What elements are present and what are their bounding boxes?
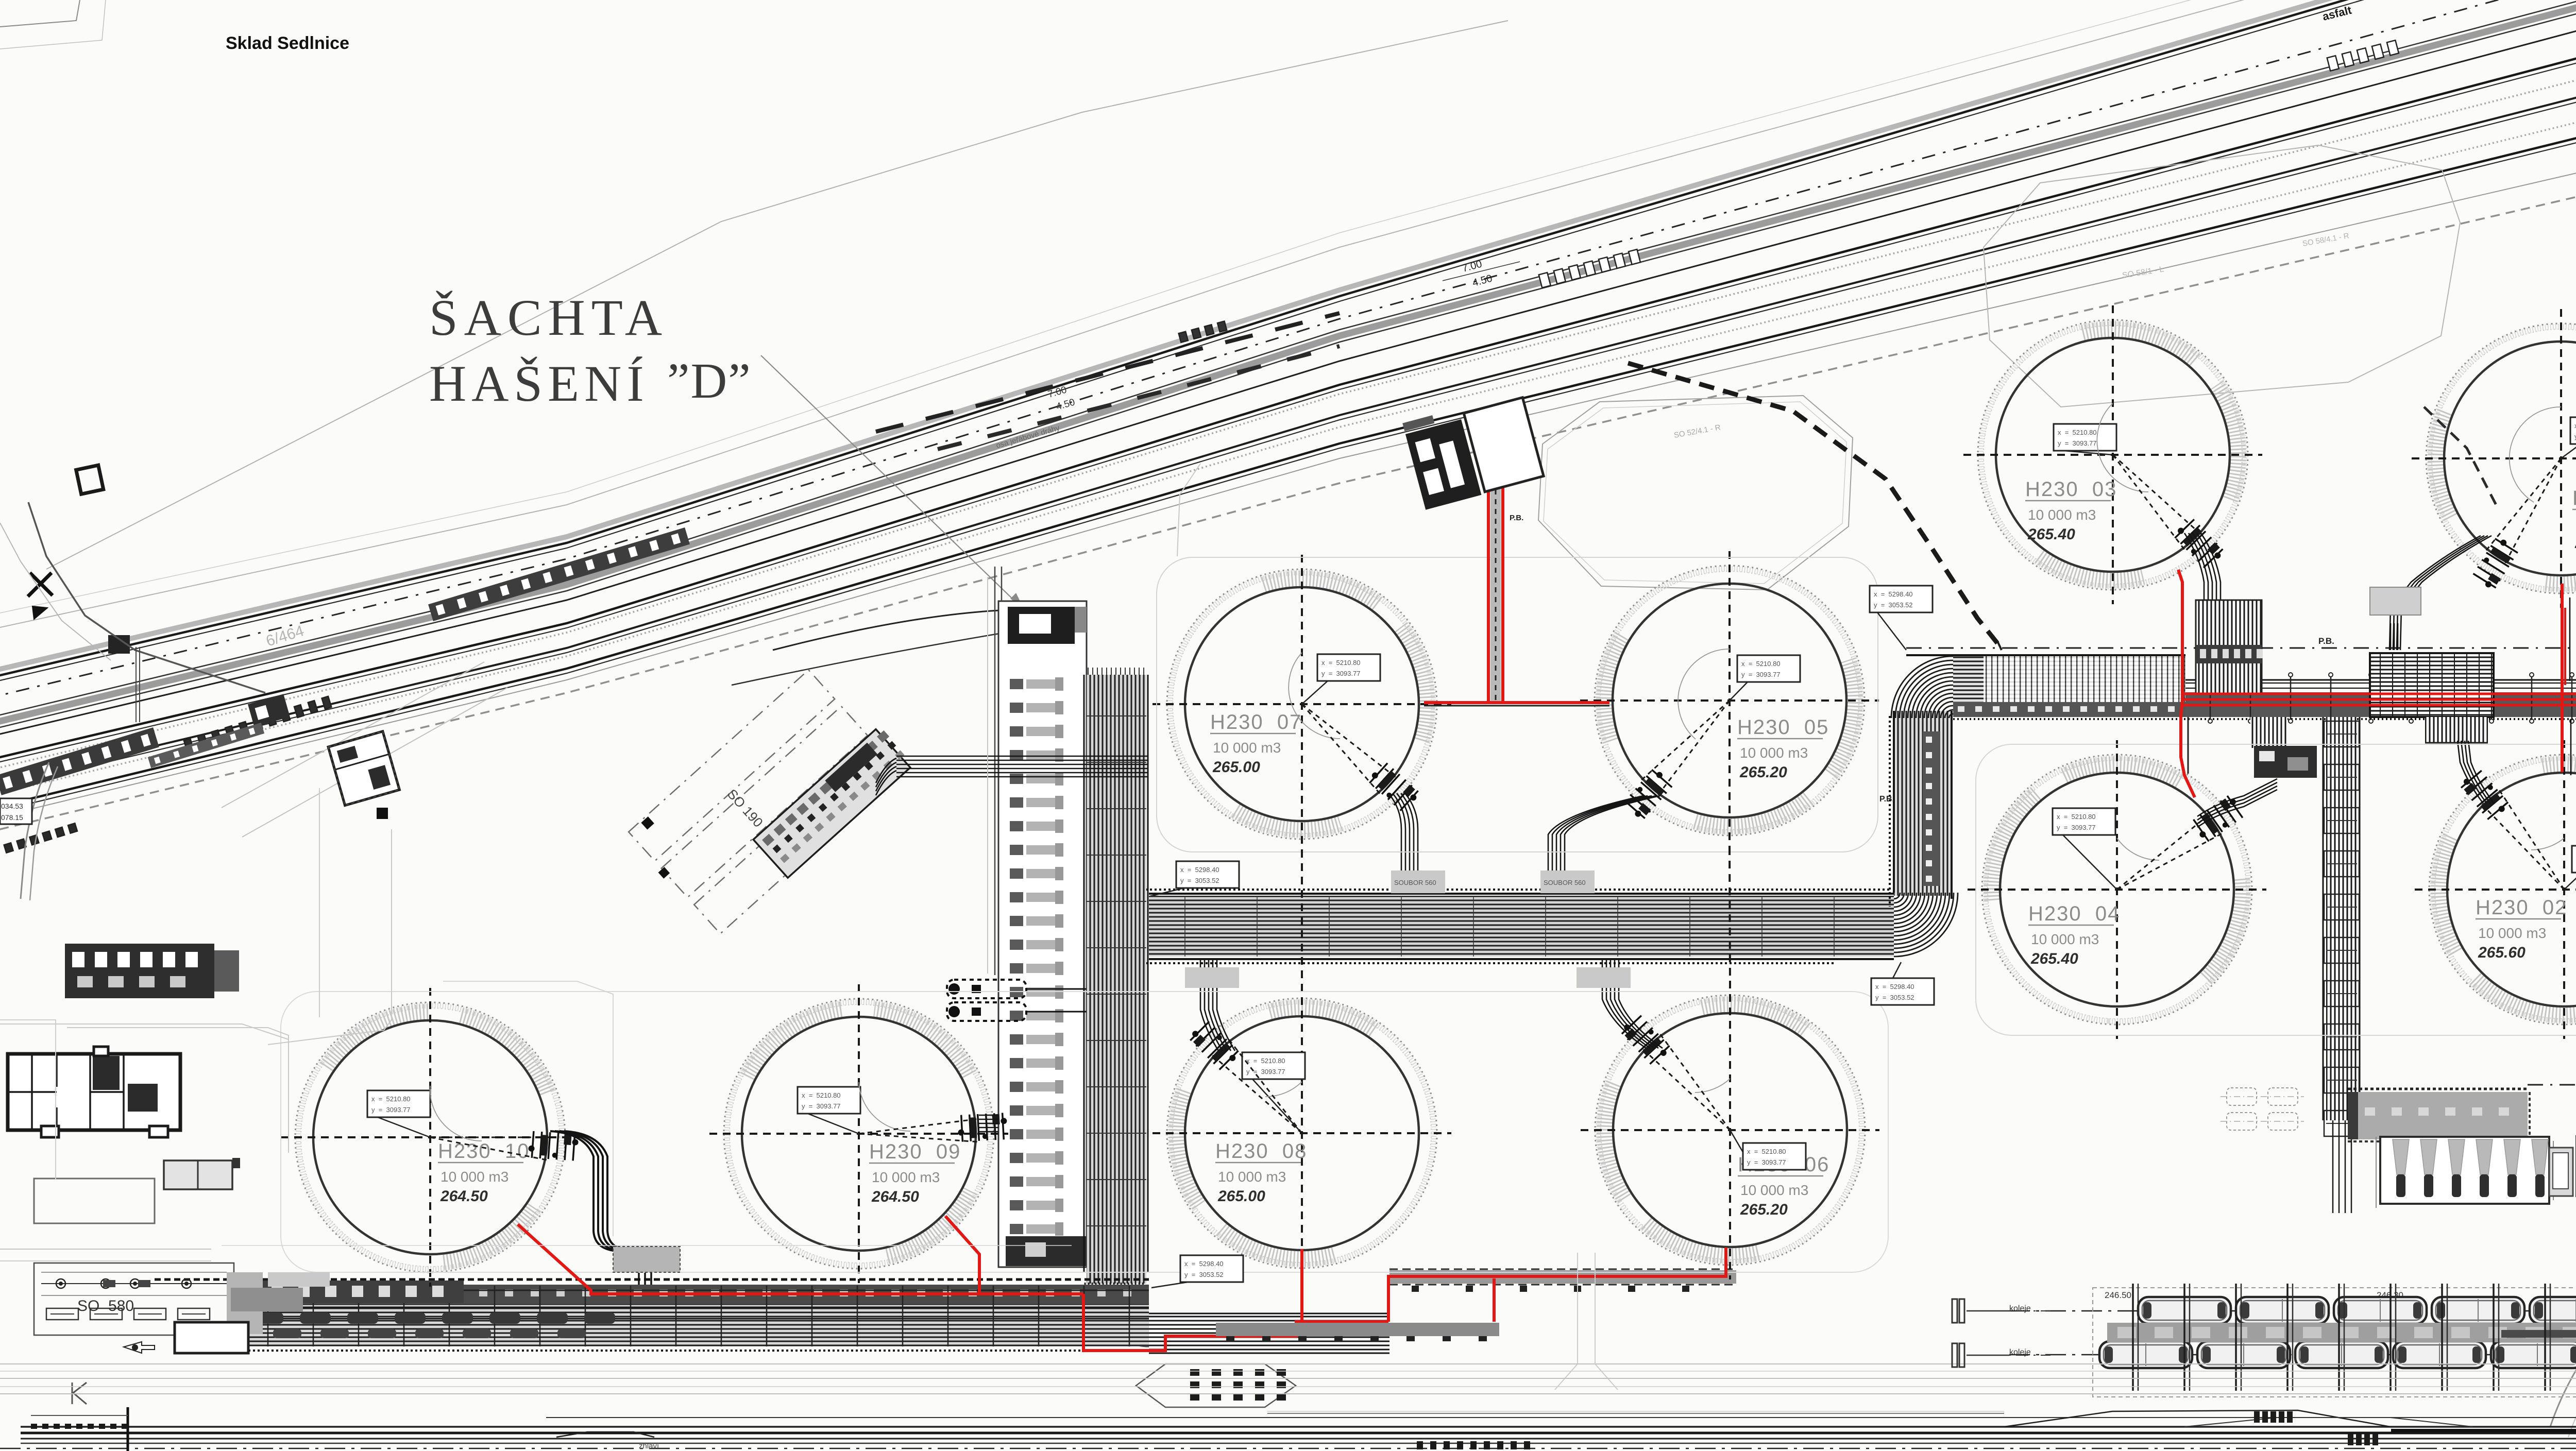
svg-text:ŠACHTA: ŠACHTA bbox=[429, 289, 668, 346]
svg-text:x = 5210.80: x = 5210.80 bbox=[1741, 660, 1781, 668]
svg-text:y = 3053.52: y = 3053.52 bbox=[1875, 994, 1914, 1001]
svg-text:SOUBOR 560: SOUBOR 560 bbox=[1544, 879, 1586, 886]
svg-text:x = 5298.40: x = 5298.40 bbox=[1875, 983, 1914, 991]
svg-text:x = 5210.80: x = 5210.80 bbox=[802, 1091, 841, 1099]
svg-text:y = 3053.52: y = 3053.52 bbox=[1180, 877, 1219, 884]
svg-text:10 000 m3: 10 000 m3 bbox=[2028, 507, 2096, 523]
svg-text:x = 5210.80: x = 5210.80 bbox=[371, 1095, 411, 1103]
svg-text:265.00: 265.00 bbox=[1217, 1188, 1265, 1205]
svg-text:264.50: 264.50 bbox=[440, 1188, 488, 1205]
svg-text:y = 3093.77: y = 3093.77 bbox=[2058, 439, 2097, 447]
svg-text:10 000 m3: 10 000 m3 bbox=[1740, 745, 1808, 761]
svg-text:10 000 m3: 10 000 m3 bbox=[440, 1169, 509, 1185]
svg-text:P.B.: P.B. bbox=[1879, 795, 1894, 804]
svg-text:H230 05: H230 05 bbox=[1737, 716, 1829, 739]
svg-text:”D”: ”D” bbox=[667, 353, 752, 409]
svg-text:10 000 m3: 10 000 m3 bbox=[872, 1169, 940, 1185]
svg-text:265.60: 265.60 bbox=[2478, 944, 2526, 961]
svg-text:H230 03: H230 03 bbox=[2025, 478, 2117, 501]
svg-text:H230 08: H230 08 bbox=[1215, 1140, 1307, 1163]
svg-text:10 000 m3: 10 000 m3 bbox=[1740, 1182, 1808, 1198]
svg-text:y = 3093.77: y = 3093.77 bbox=[371, 1106, 411, 1114]
svg-text:034.53: 034.53 bbox=[1, 802, 23, 810]
svg-text:y = 3093.77: y = 3093.77 bbox=[1747, 1158, 1786, 1166]
svg-text:078.15: 078.15 bbox=[1, 813, 23, 822]
svg-text:265.00: 265.00 bbox=[1212, 759, 1260, 776]
svg-text:y = 3093.77: y = 3093.77 bbox=[1321, 670, 1361, 677]
svg-text:Sklad Sedlnice: Sklad Sedlnice bbox=[226, 33, 349, 53]
svg-text:koleje: koleje bbox=[2009, 1304, 2031, 1313]
svg-text:H230 10: H230 10 bbox=[438, 1140, 530, 1163]
svg-text:x = 5210.80: x = 5210.80 bbox=[1246, 1057, 1285, 1065]
svg-text:264.50: 264.50 bbox=[871, 1188, 919, 1205]
svg-text:SO 580: SO 580 bbox=[77, 1298, 134, 1315]
svg-text:x = 5210.80: x = 5210.80 bbox=[2057, 813, 2096, 821]
svg-text:x = 5210.80: x = 5210.80 bbox=[2058, 429, 2097, 436]
svg-text:265.20: 265.20 bbox=[1740, 1201, 1788, 1218]
svg-text:10 000 m3: 10 000 m3 bbox=[2031, 931, 2099, 947]
svg-text:H230 02: H230 02 bbox=[2476, 896, 2567, 919]
svg-text:P.B.: P.B. bbox=[2318, 636, 2334, 646]
svg-text:x = 5298.40: x = 5298.40 bbox=[1874, 590, 1913, 598]
svg-text:x = 5298.40: x = 5298.40 bbox=[1180, 866, 1219, 874]
svg-text:x = 5210.80: x = 5210.80 bbox=[1321, 659, 1361, 667]
svg-text:SOUBOR 560: SOUBOR 560 bbox=[1394, 879, 1436, 886]
svg-text:x = 5210.80: x = 5210.80 bbox=[1747, 1148, 1786, 1155]
svg-text:10 000 m3: 10 000 m3 bbox=[1218, 1169, 1286, 1185]
svg-text:10 000 m3: 10 000 m3 bbox=[1213, 740, 1281, 756]
svg-text:y = 3053.52: y = 3053.52 bbox=[1874, 601, 1913, 609]
svg-text:265.20: 265.20 bbox=[1739, 764, 1787, 781]
svg-text:H230 09: H230 09 bbox=[869, 1140, 961, 1163]
svg-text:H230 04: H230 04 bbox=[2028, 902, 2120, 925]
svg-text:10 000 m3: 10 000 m3 bbox=[2478, 925, 2546, 941]
svg-text:y = 3093.77: y = 3093.77 bbox=[802, 1102, 841, 1110]
svg-text:y = 3093.77: y = 3093.77 bbox=[1741, 671, 1781, 678]
svg-text:246.50: 246.50 bbox=[2105, 1290, 2131, 1300]
svg-text:y = 3093.77: y = 3093.77 bbox=[2057, 824, 2096, 831]
svg-text:HAŠENÍ: HAŠENÍ bbox=[429, 355, 649, 412]
svg-text:y = 3053.52: y = 3053.52 bbox=[1184, 1271, 1224, 1278]
svg-text:265.40: 265.40 bbox=[2030, 950, 2078, 967]
svg-text:zhlaví: zhlaví bbox=[639, 1442, 659, 1450]
svg-text:H230 07: H230 07 bbox=[1210, 711, 1302, 733]
svg-text:P.B.: P.B. bbox=[1510, 514, 1523, 522]
svg-text:x = 5298.40: x = 5298.40 bbox=[1184, 1260, 1224, 1268]
svg-text:H230 01: H230 01 bbox=[2572, 487, 2576, 509]
svg-text:265.40: 265.40 bbox=[2027, 526, 2075, 543]
